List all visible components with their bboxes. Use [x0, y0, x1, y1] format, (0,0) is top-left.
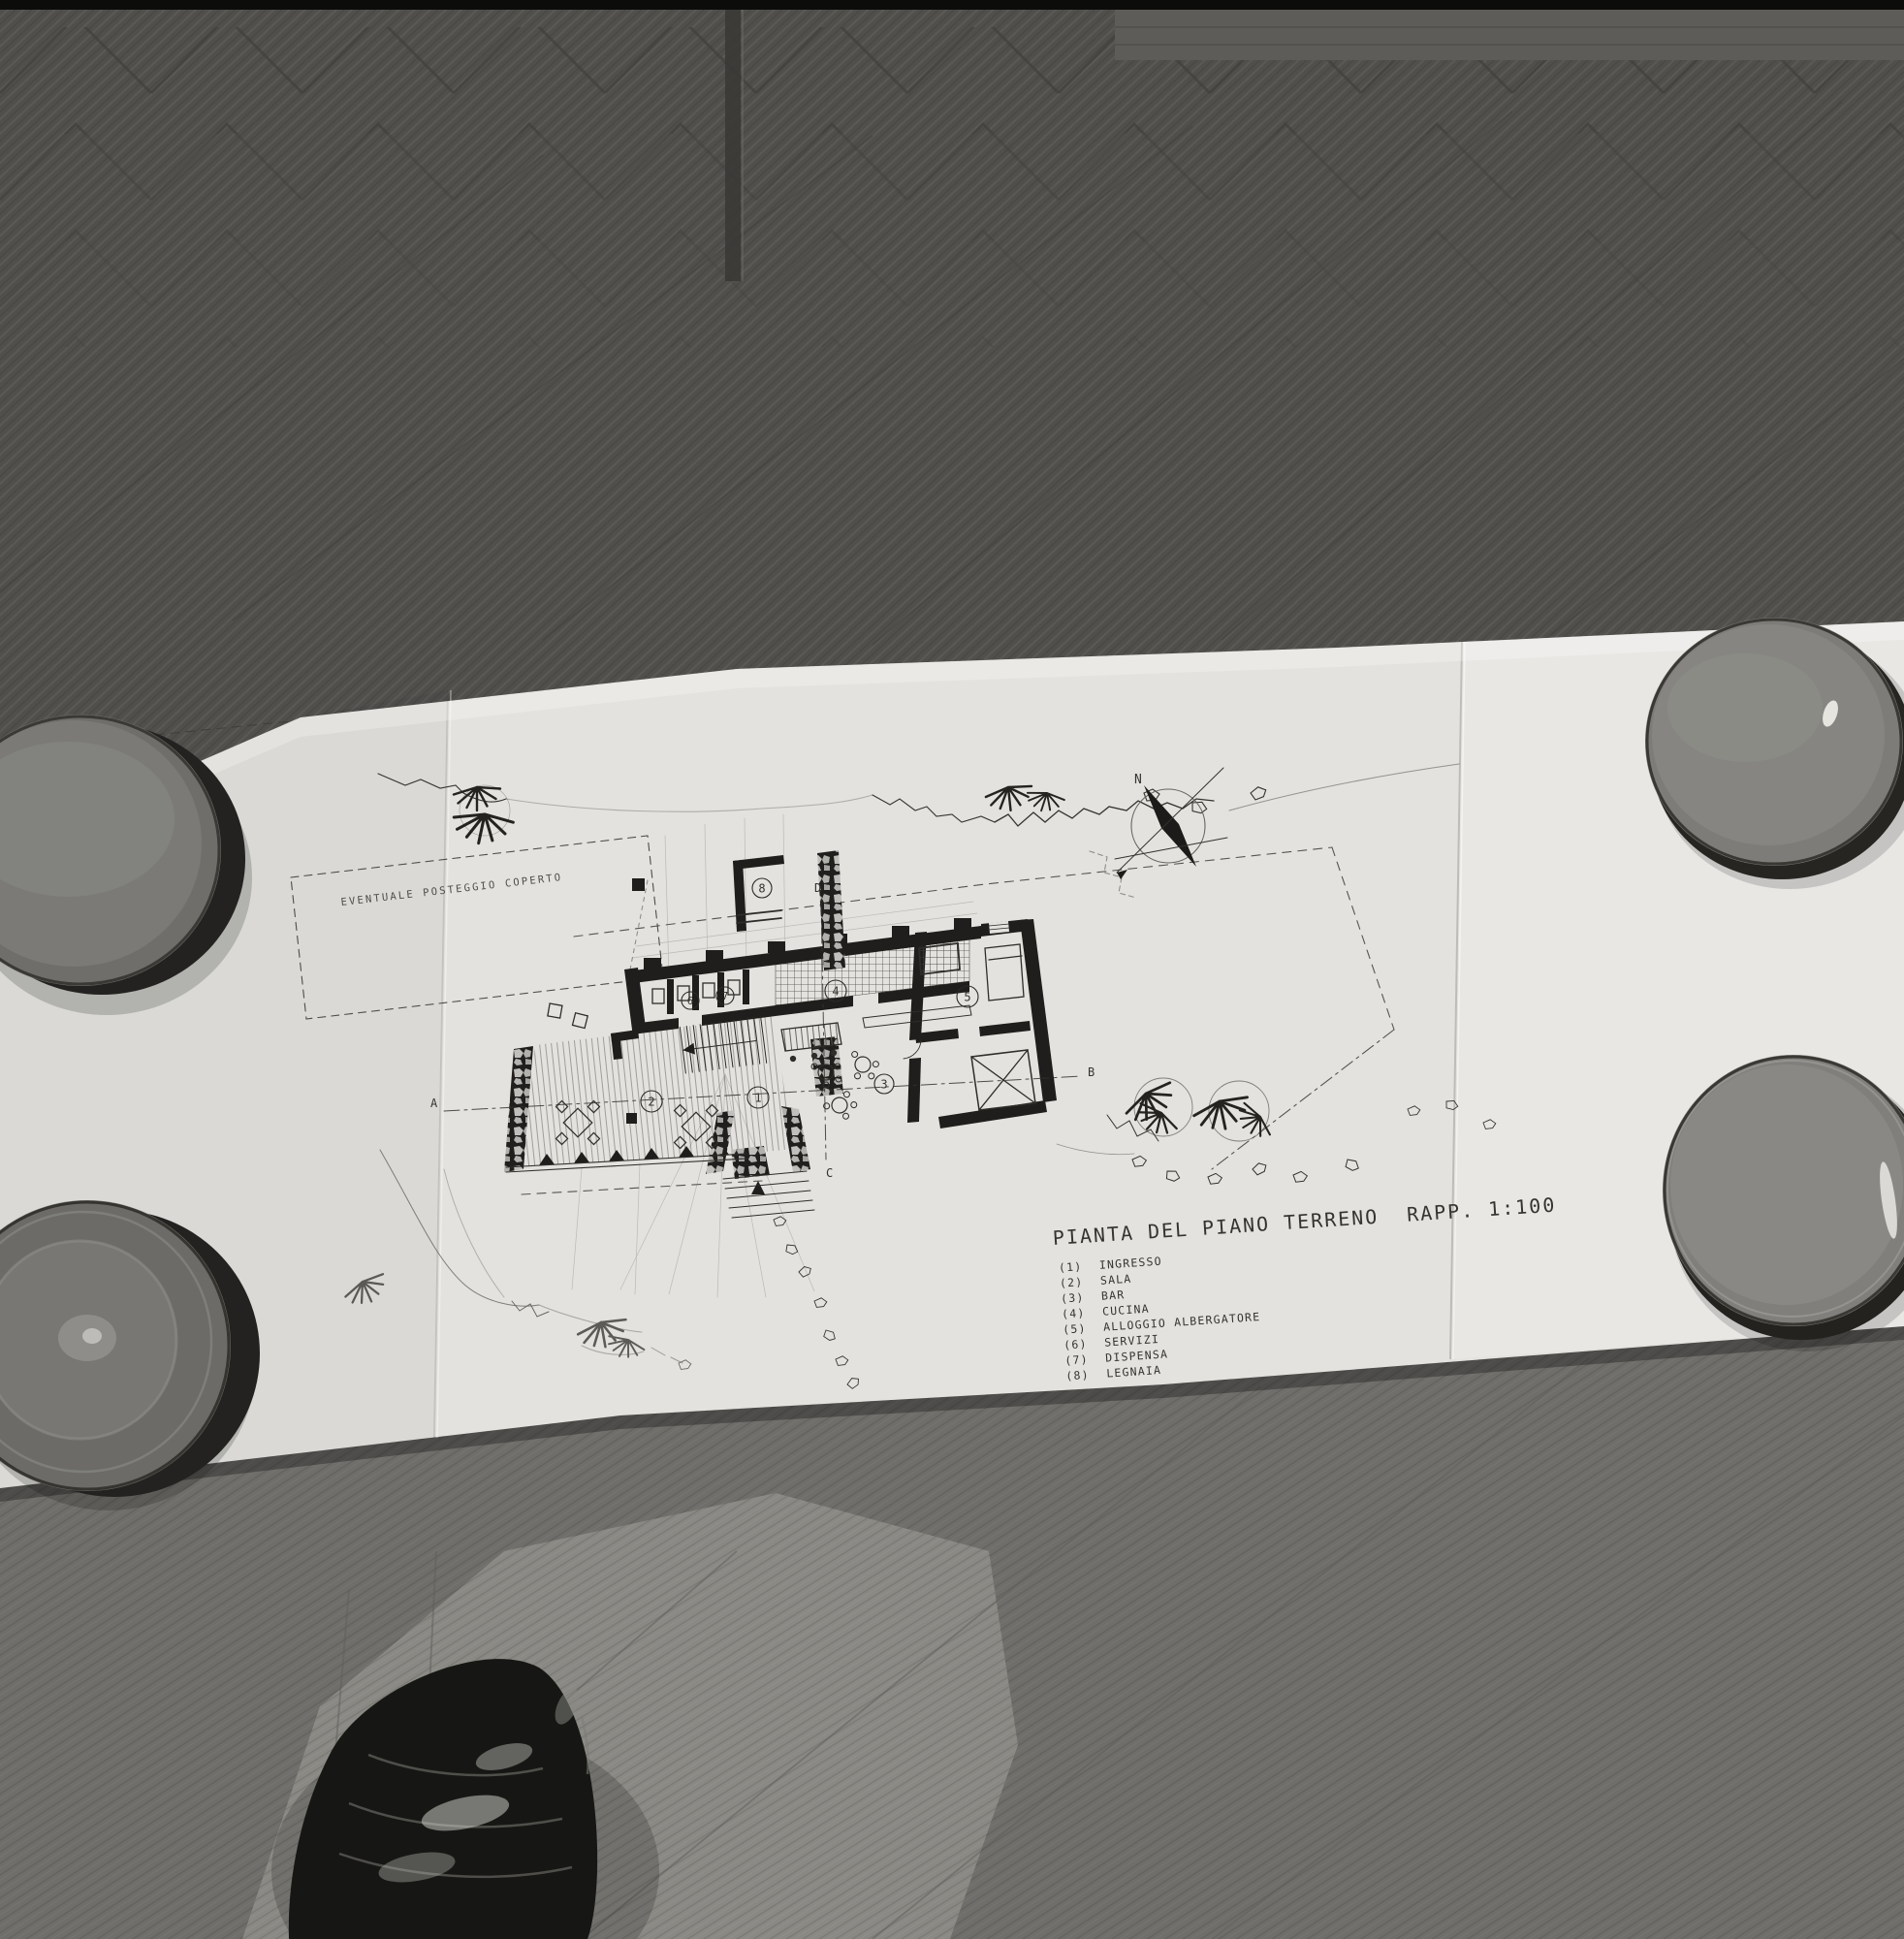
top-plank-strip: [1115, 10, 1904, 60]
room-number: 6: [687, 996, 693, 1007]
room-number: 2: [648, 1096, 654, 1109]
section-letter-a: A: [430, 1097, 438, 1110]
room-number: 4: [832, 985, 839, 999]
section-letter-b: B: [1088, 1065, 1095, 1079]
section-letter-d: D: [814, 881, 821, 895]
room-number: 3: [880, 1078, 887, 1092]
photo-canvas: EVENTUALE POSTEGGIO COPERTO: [0, 0, 1904, 1939]
room-number: 5: [964, 991, 970, 1004]
room-number: 1: [754, 1092, 761, 1105]
photo-border: [0, 0, 1904, 10]
room-number: 8: [758, 882, 765, 896]
floor-gap-strip: [725, 10, 741, 281]
section-letter-c: C: [826, 1166, 833, 1180]
compass-north-label: N: [1134, 773, 1142, 787]
photo-architectural-plan-on-floor: EVENTUALE POSTEGGIO COPERTO: [0, 0, 1904, 1939]
room-number: 7: [722, 991, 728, 1002]
